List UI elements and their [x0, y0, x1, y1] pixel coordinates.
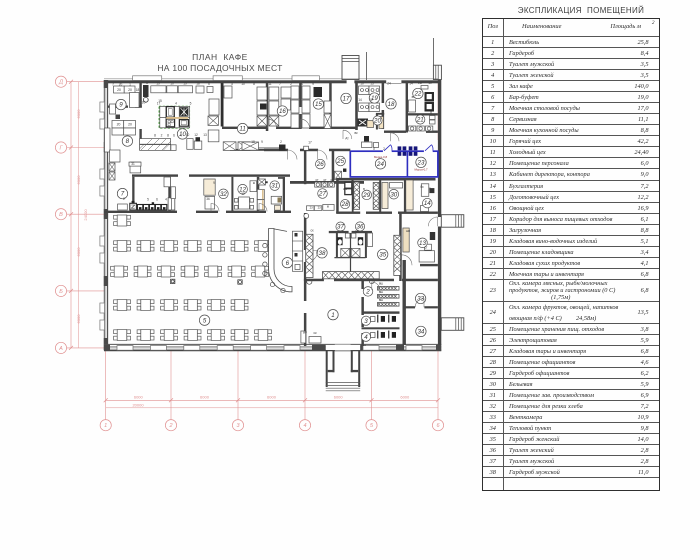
svg-text:Г: Г — [60, 146, 64, 152]
svg-text:31: 31 — [271, 183, 278, 190]
svg-text:5: 5 — [370, 423, 374, 429]
svg-text:19: 19 — [183, 82, 187, 86]
svg-text:8: 8 — [126, 138, 130, 145]
svg-text:20: 20 — [128, 88, 132, 92]
svg-text:29: 29 — [362, 192, 370, 199]
svg-text:ск: ск — [314, 331, 318, 335]
svg-text:4: 4 — [301, 82, 303, 86]
svg-text:15: 15 — [158, 99, 162, 103]
svg-text:12: 12 — [241, 192, 245, 196]
svg-text:2: 2 — [383, 147, 385, 151]
svg-text:2: 2 — [123, 197, 125, 201]
svg-text:5: 5 — [431, 233, 433, 237]
svg-text:18: 18 — [251, 140, 255, 144]
svg-text:4: 4 — [165, 198, 167, 202]
svg-text:6000: 6000 — [76, 247, 81, 257]
svg-text:1п: 1п — [350, 179, 354, 183]
svg-text:9: 9 — [312, 82, 314, 86]
svg-text:ст: ст — [323, 178, 327, 182]
svg-text:вк: вк — [354, 131, 358, 135]
svg-text:6: 6 — [436, 423, 440, 429]
svg-text:7: 7 — [279, 82, 281, 86]
svg-text:32: 32 — [220, 191, 227, 198]
svg-text:14: 14 — [409, 82, 413, 86]
svg-text:20: 20 — [117, 88, 121, 92]
svg-text:24: 24 — [387, 82, 391, 86]
svg-text:22: 22 — [413, 91, 421, 98]
svg-text:ст: ст — [315, 178, 319, 182]
svg-text:2: 2 — [280, 140, 282, 144]
svg-text:2: 2 — [365, 289, 370, 296]
svg-text:Л: Л — [373, 147, 375, 151]
svg-text:5: 5 — [429, 187, 431, 191]
svg-text:8: 8 — [253, 82, 255, 86]
svg-text:20: 20 — [373, 118, 381, 125]
svg-text:8: 8 — [167, 134, 169, 138]
svg-text:6000: 6000 — [400, 394, 410, 399]
svg-text:ск: ск — [311, 229, 315, 233]
svg-text:6: 6 — [286, 260, 290, 267]
svg-text:20: 20 — [117, 123, 121, 127]
svg-text:20000: 20000 — [132, 402, 144, 407]
svg-text:6000: 6000 — [76, 314, 81, 324]
svg-text:6000: 6000 — [267, 394, 277, 399]
svg-text:34: 34 — [417, 329, 424, 336]
svg-text:2б: 2б — [142, 101, 146, 105]
svg-text:2: 2 — [290, 82, 292, 86]
svg-text:бх: бх — [420, 185, 424, 189]
svg-text:А: А — [58, 346, 63, 352]
svg-text:30: 30 — [390, 191, 397, 198]
svg-text:24000: 24000 — [83, 209, 88, 221]
svg-text:14: 14 — [358, 98, 362, 102]
svg-text:1з: 1з — [309, 206, 313, 210]
svg-text:Мороз-0,8: Мороз-0,8 — [374, 155, 388, 159]
svg-text:10: 10 — [186, 133, 190, 137]
svg-text:9: 9 — [119, 102, 123, 109]
svg-text:10: 10 — [428, 81, 432, 85]
svg-text:8: 8 — [430, 111, 432, 115]
svg-text:в: в — [363, 187, 365, 191]
svg-text:6: 6 — [156, 198, 158, 202]
svg-text:16: 16 — [279, 108, 286, 115]
svg-text:12: 12 — [369, 98, 373, 102]
svg-text:20: 20 — [119, 83, 123, 87]
svg-text:3: 3 — [236, 423, 240, 429]
svg-text:1: 1 — [331, 312, 334, 319]
svg-text:10: 10 — [170, 82, 174, 86]
svg-text:ун: ун — [355, 229, 359, 233]
svg-text:шк: шк — [343, 187, 348, 191]
svg-text:38: 38 — [319, 250, 326, 257]
svg-text:Д: Д — [58, 80, 63, 86]
svg-text:19: 19 — [156, 82, 160, 86]
svg-text:27: 27 — [318, 191, 326, 198]
svg-text:ем: ем — [418, 81, 422, 85]
svg-text:5: 5 — [147, 198, 149, 202]
svg-text:1б: 1б — [360, 82, 364, 86]
svg-text:Мороз-0,7: Мороз-0,7 — [414, 168, 428, 172]
svg-text:18: 18 — [136, 88, 140, 92]
svg-text:17: 17 — [343, 96, 350, 103]
svg-text:ст: ст — [330, 178, 334, 182]
svg-text:24: 24 — [376, 161, 384, 168]
svg-text:18: 18 — [388, 101, 395, 108]
svg-text:4: 4 — [364, 334, 368, 341]
svg-text:10: 10 — [241, 82, 245, 86]
svg-text:23: 23 — [417, 159, 425, 166]
svg-text:8: 8 — [154, 134, 156, 138]
svg-text:9: 9 — [261, 140, 263, 144]
svg-text:31: 31 — [131, 162, 135, 166]
svg-text:25: 25 — [336, 158, 344, 165]
svg-text:1в: 1в — [196, 82, 200, 86]
svg-text:35: 35 — [379, 252, 386, 259]
svg-text:6: 6 — [173, 134, 175, 138]
svg-text:6000: 6000 — [334, 394, 344, 399]
svg-text:ун: ун — [339, 229, 343, 233]
svg-text:26: 26 — [316, 161, 324, 168]
svg-text:3: 3 — [364, 318, 368, 325]
svg-text:20: 20 — [128, 123, 132, 127]
svg-text:15: 15 — [315, 101, 322, 108]
svg-text:5: 5 — [203, 317, 207, 324]
svg-text:вш: вш — [379, 282, 384, 286]
svg-text:9: 9 — [213, 181, 215, 185]
svg-text:4: 4 — [175, 102, 177, 106]
svg-text:4: 4 — [180, 134, 182, 138]
svg-text:17: 17 — [308, 141, 312, 145]
svg-text:28: 28 — [341, 201, 349, 208]
svg-text:дв: дв — [303, 330, 307, 334]
svg-text:Б: Б — [59, 289, 63, 295]
svg-text:36: 36 — [206, 197, 210, 201]
svg-text:6: 6 — [146, 81, 148, 85]
svg-text:б: б — [208, 82, 210, 86]
svg-text:5: 5 — [231, 82, 233, 86]
svg-text:11: 11 — [239, 126, 245, 133]
svg-text:7: 7 — [112, 83, 114, 87]
svg-text:4: 4 — [303, 423, 306, 429]
svg-text:6000: 6000 — [134, 394, 144, 399]
svg-text:1: 1 — [104, 423, 107, 429]
svg-text:6000: 6000 — [76, 109, 81, 119]
svg-text:В: В — [59, 212, 63, 218]
svg-text:шк: шк — [406, 229, 411, 233]
svg-text:вш: вш — [379, 298, 384, 302]
svg-text:вш: вш — [379, 290, 384, 294]
svg-text:6000: 6000 — [200, 394, 210, 399]
svg-text:21: 21 — [416, 117, 424, 124]
svg-text:Ат: Ат — [345, 137, 349, 141]
svg-text:14: 14 — [424, 200, 431, 207]
svg-text:6000: 6000 — [76, 175, 81, 185]
svg-text:12: 12 — [194, 133, 198, 137]
svg-text:15: 15 — [370, 82, 374, 86]
svg-text:2: 2 — [161, 134, 163, 138]
svg-text:1з: 1з — [317, 206, 321, 210]
svg-text:11: 11 — [268, 82, 272, 86]
svg-text:1: 1 — [129, 83, 131, 87]
svg-text:2: 2 — [168, 423, 172, 429]
svg-text:13: 13 — [203, 133, 207, 137]
svg-text:5: 5 — [190, 102, 192, 106]
svg-text:9: 9 — [222, 82, 224, 86]
